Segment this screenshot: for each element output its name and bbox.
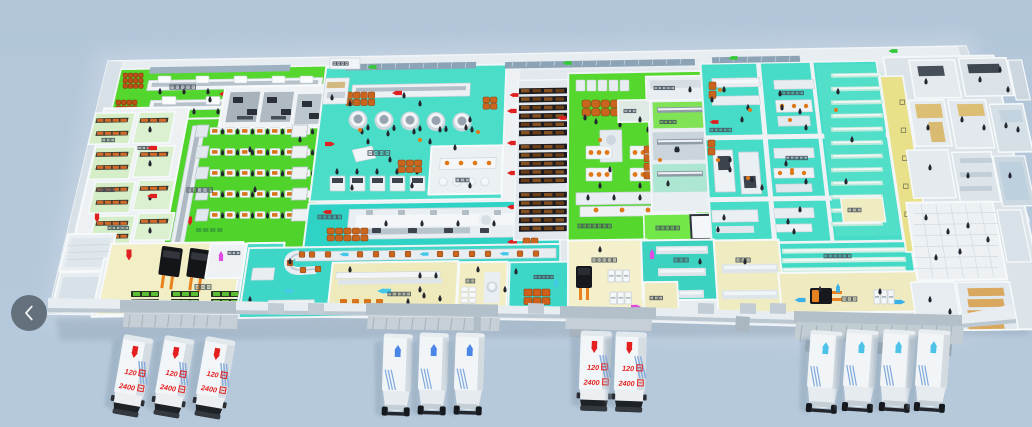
svg-text:2400: 2400 [582,378,599,388]
svg-text:120: 120 [587,363,599,372]
svg-text:2400: 2400 [617,379,634,389]
svg-text:120: 120 [622,364,634,373]
